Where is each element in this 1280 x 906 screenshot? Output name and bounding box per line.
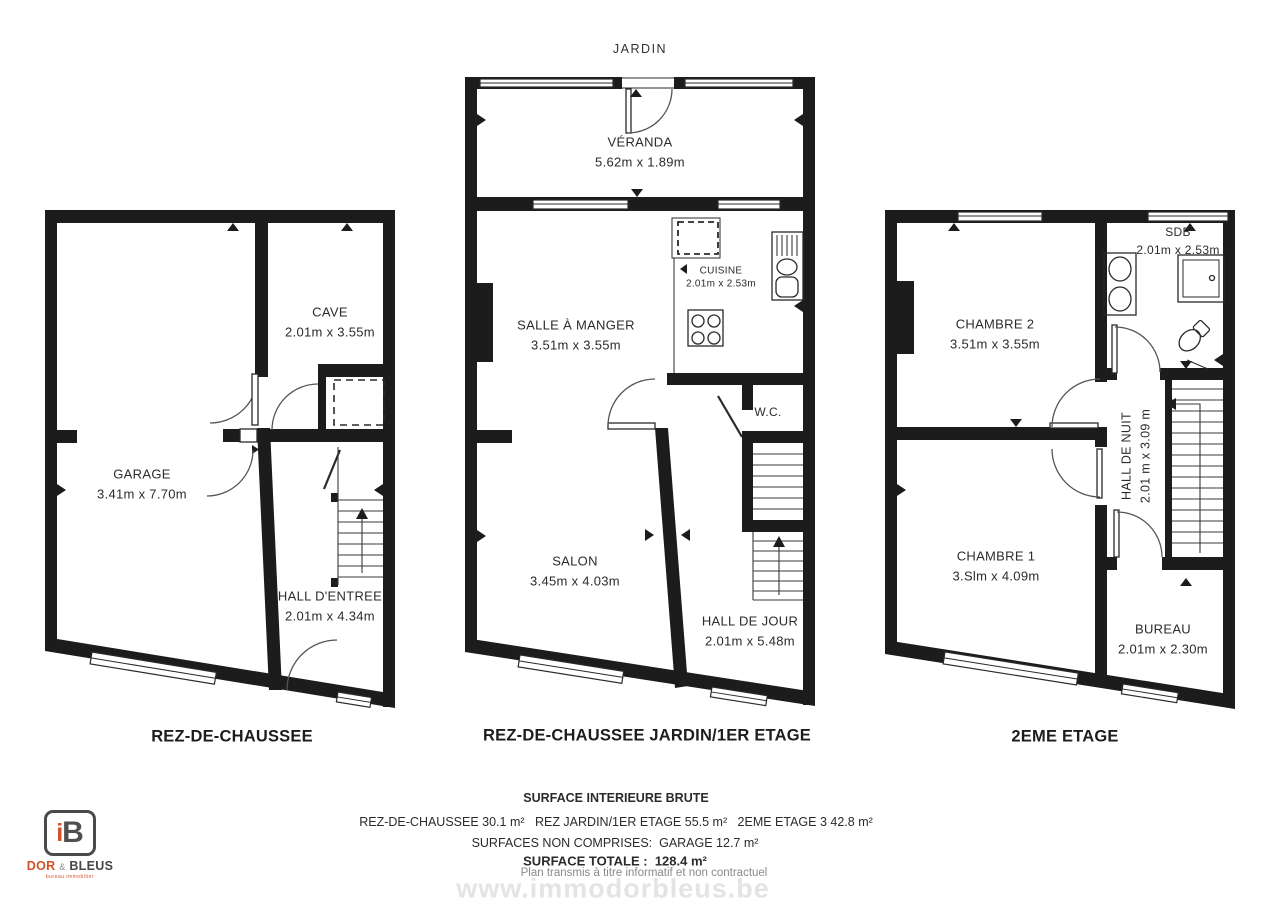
excluded-surfaces-line: SURFACES NON COMPRISES: GARAGE 12.7 m² (472, 836, 759, 850)
room-label-hall-de-jour: HALL DE JOUR 2.01m x 5.48m (702, 612, 798, 651)
room-label-sdb: SDB 2.01m x 2.53m (1136, 223, 1219, 259)
agency-tagline: bureau immobilier (18, 874, 122, 880)
room-label-salon: SALON 3.45m x 4.03m (530, 552, 620, 591)
agency-name: DOR & BLEUS (18, 859, 122, 873)
room-label-garage: GARAGE 3.41m x 7.70m (97, 465, 187, 504)
ground-floor-stairs (338, 447, 383, 585)
room-label-hall-entree: HALL D'ENTREE 2.01m x 4.34m (278, 587, 382, 626)
disclaimer: Plan transmis à titre informatif et non … (521, 867, 768, 879)
room-label-hall-de-nuit: HALL DE NUIT 2.01 m x 3.09 m (1117, 409, 1155, 503)
kitchen-fixtures (672, 218, 803, 373)
ground-floor-walls (45, 210, 395, 708)
room-label-cuisine: CUISINE 2.01m x 2.53m (686, 266, 756, 291)
second-floor-stairs (1166, 389, 1223, 553)
room-label-bureau: BUREAU 2.01m x 2.30m (1118, 620, 1208, 659)
ground-floor-closet (334, 380, 384, 425)
garden-label: JARDIN (613, 42, 667, 56)
room-label-wc: W.C. (754, 403, 781, 421)
room-label-chambre-1: CHAMBRE 1 3.Slm x 4.09m (953, 547, 1040, 586)
logo-letter-b: B (62, 818, 84, 848)
ground-floor-ticks (57, 223, 383, 496)
room-label-chambre-2: CHAMBRE 2 3.51m x 3.55m (950, 315, 1040, 354)
surface-title: SURFACE INTERIEURE BRUTE (523, 791, 708, 805)
floorplan-page: JARDIN GARAGE 3.41m x 7.70m CAVE 2.01m x… (0, 0, 1280, 906)
room-label-cave: CAVE 2.01m x 3.55m (285, 303, 375, 342)
surfaces-line: REZ-DE-CHAUSSEE 30.1 m² REZ JARDIN/1ER E… (359, 815, 873, 829)
agency-logo: i B DOR & BLEUS bureau immobilier (18, 810, 122, 880)
room-label-veranda: VÉRANDA 5.62m x 1.89m (595, 133, 685, 172)
agency-logo-monogram: i B (44, 810, 96, 856)
room-label-salle-a-manger: SALLE À MANGER 3.51m x 3.55m (517, 316, 635, 355)
plan-title-ground-floor: REZ-DE-CHAUSSEE (151, 728, 313, 747)
plan-title-second-floor: 2EME ETAGE (1011, 728, 1118, 747)
plan-title-garden-floor: REZ-DE-CHAUSSEE JARDIN/1ER ETAGE (483, 727, 811, 746)
bathroom-fixtures (1104, 253, 1224, 369)
